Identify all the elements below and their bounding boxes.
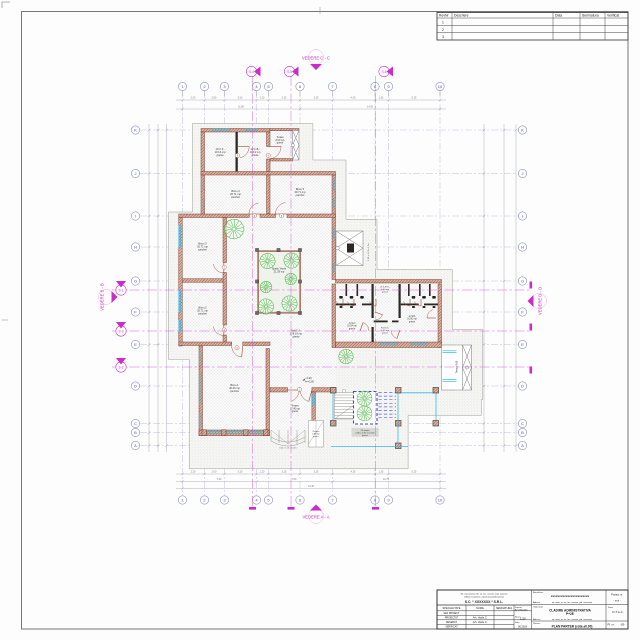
svg-text:SPECIALITATE: SPECIALITATE	[443, 606, 461, 610]
svg-text:Pl. nr.: Pl. nr.	[608, 623, 615, 627]
svg-text:G: G	[134, 278, 137, 283]
svg-text:1:50: 1:50	[520, 616, 526, 620]
svg-text:B: B	[521, 430, 524, 435]
svg-text:h=+2.80: h=+2.80	[305, 380, 314, 383]
svg-text:-G.S.F-: -G.S.F-	[348, 323, 356, 325]
svg-text:24.30: 24.30	[308, 485, 315, 488]
svg-text:parchet: parchet	[198, 312, 207, 316]
svg-text:parchet: parchet	[230, 389, 239, 393]
svg-text:K: K	[134, 127, 137, 132]
svg-text:Verificat: Verificat	[607, 14, 619, 18]
svg-text:3.15: 3.15	[282, 97, 287, 100]
svg-text:5.15: 5.15	[412, 471, 417, 474]
svg-text:Adresa:: Adresa:	[533, 601, 541, 604]
svg-text:16.90 mp: 16.90 mp	[407, 319, 417, 321]
svg-text:PLAN PARTER (cota ±0.00): PLAN PARTER (cota ±0.00)	[552, 624, 593, 628]
svg-text:5.15: 5.15	[412, 97, 417, 100]
svg-text:DESENAT: DESENAT	[446, 621, 458, 624]
svg-text:7.60: 7.60	[292, 478, 297, 481]
svg-text:J: J	[522, 171, 524, 176]
svg-text:gresie: gresie	[382, 332, 389, 335]
svg-text:Descriere: Descriere	[454, 14, 469, 18]
svg-text:D: D	[134, 383, 137, 388]
svg-text:K: K	[521, 127, 524, 132]
svg-text:parchet: parchet	[198, 248, 207, 252]
svg-text:RevNr: RevNr	[439, 14, 449, 18]
svg-text:A: A	[134, 443, 137, 448]
svg-text:VEDERE D - D: VEDERE D - D	[538, 287, 543, 315]
svg-text:3: 3	[442, 35, 444, 39]
svg-text:gresie: gresie	[292, 335, 300, 339]
svg-text:gresie: gresie	[313, 435, 320, 438]
svg-text:E: E	[521, 342, 524, 347]
svg-text:Obiectivul:: Obiectivul:	[533, 606, 544, 609]
svg-text:21.28 mp: 21.28 mp	[274, 270, 285, 273]
svg-text:D.T.A.C.: D.T.A.C.	[612, 610, 623, 614]
svg-text:I: I	[135, 213, 136, 218]
svg-text:10.04 mp: 10.04 mp	[347, 326, 357, 328]
svg-text:gresie: gresie	[409, 320, 416, 323]
svg-text:S.C. * XXXXXXX * S.R.L.: S.C. * XXXXXXX * S.R.L.	[465, 600, 503, 604]
svg-text:NUME: NUME	[476, 606, 484, 610]
svg-text:7.40: 7.40	[217, 478, 222, 481]
svg-text:B: B	[134, 430, 137, 435]
svg-text:VEDERE C - C: VEDERE C - C	[302, 56, 330, 61]
svg-text:Arh. Vasile C.: Arh. Vasile C.	[473, 617, 488, 620]
svg-text:gresie: gresie	[382, 291, 389, 294]
svg-text:A2 (594x420): A2 (594x420)	[515, 608, 528, 611]
svg-text:S-2: S-2	[119, 365, 124, 369]
svg-text:1.20: 1.20	[260, 97, 265, 100]
svg-text:2.20: 2.20	[191, 471, 196, 474]
svg-text:Data: Data	[555, 14, 562, 18]
svg-text:10: 10	[438, 497, 443, 502]
svg-text:gresie: gresie	[216, 153, 224, 157]
svg-text:20 trepte: 20 trepte	[361, 429, 370, 432]
svg-text:gresie: gresie	[277, 142, 284, 145]
svg-text:S-6: S-6	[382, 70, 387, 74]
svg-text:H: H	[521, 244, 524, 249]
svg-text:parchet: parchet	[231, 195, 240, 199]
svg-text:Semnatura: Semnatura	[582, 14, 599, 18]
svg-text:C: C	[521, 421, 524, 426]
svg-text:I: I	[522, 213, 523, 218]
svg-text:06.2019: 06.2019	[518, 626, 528, 629]
svg-text:-03-: -03-	[620, 623, 625, 627]
svg-text:Str. xxxxxxxxxx, Nr. xx, loc.: Str. xxxxxxxxxx, Nr. xx, loc. xxxxxx, Ju…	[460, 593, 508, 596]
svg-text:1: 1	[442, 21, 444, 25]
svg-text:gresie: gresie	[349, 327, 356, 330]
svg-text:tel/fax xxxxxxxxx, email xxxxx: tel/fax xxxxxxxxx, email xxxxxx@xxxxxxx	[464, 596, 505, 599]
svg-text:J: J	[135, 171, 137, 176]
svg-text:3.20: 3.20	[238, 471, 243, 474]
svg-text:3.20: 3.20	[238, 97, 243, 100]
svg-text:2: 2	[442, 28, 444, 32]
svg-text:Plansa:: Plansa:	[533, 623, 541, 625]
svg-text:D: D	[521, 383, 524, 388]
svg-text:H: H	[134, 244, 137, 249]
svg-text:2.00: 2.00	[212, 471, 217, 474]
svg-text:4.25: 4.25	[351, 471, 356, 474]
svg-text:3.25: 3.25	[314, 471, 319, 474]
svg-text:14.00: 14.00	[367, 106, 374, 109]
svg-text:Adresa:: Adresa:	[533, 618, 541, 621]
svg-text:1.35: 1.35	[379, 471, 384, 474]
svg-text:S-3: S-3	[119, 329, 124, 333]
svg-text:SEMNATURA: SEMNATURA	[496, 606, 512, 610]
svg-text:parchet: parchet	[296, 193, 305, 197]
svg-text:PROIECTAT: PROIECTAT	[445, 617, 459, 620]
svg-text:Arh. Vasile C.: Arh. Vasile C.	[473, 621, 488, 624]
svg-text:-G.S.B-: -G.S.B-	[408, 316, 416, 318]
svg-text:10.75: 10.75	[383, 478, 390, 481]
svg-text:gresie: gresie	[292, 410, 299, 413]
svg-text:Faza: Faza	[608, 607, 614, 609]
svg-text:10: 10	[438, 84, 443, 89]
svg-text:VEDERE A - A: VEDERE A - A	[303, 515, 330, 520]
svg-text:S-5: S-5	[287, 70, 292, 74]
svg-text:C: C	[134, 421, 137, 426]
svg-text:3.15: 3.15	[282, 471, 287, 474]
svg-text:VEDERE B - B: VEDERE B - B	[100, 283, 105, 311]
svg-text:Beneficiar:: Beneficiar:	[533, 591, 544, 594]
svg-text:S-1: S-1	[119, 288, 124, 292]
svg-text:VERIFICAT: VERIFICAT	[445, 626, 458, 629]
svg-text:SEF PROIECT: SEF PROIECT	[444, 612, 460, 615]
svg-text:1.20: 1.20	[260, 471, 265, 474]
svg-text:E: E	[134, 342, 137, 347]
svg-text:P+2E: P+2E	[566, 612, 574, 616]
svg-text:2.00: 2.00	[212, 97, 217, 100]
svg-text:Proiect nr.: Proiect nr.	[611, 593, 623, 597]
svg-text:3.25: 3.25	[314, 97, 319, 100]
svg-text:S-4: S-4	[249, 70, 254, 74]
svg-text:gresie: gresie	[362, 434, 369, 437]
svg-text:2.20: 2.20	[191, 97, 196, 100]
svg-text:11.80: 11.80	[238, 106, 244, 109]
svg-text:3.00 x 1.15 x 0.15m: 3.00 x 1.15 x 0.15m	[279, 448, 297, 450]
svg-text:xxxxxxxxxxxxxxxxxxxxxxx: xxxxxxxxxxxxxxxxxxxxxxx	[551, 594, 590, 598]
svg-text:- xxx -: - xxx -	[613, 599, 621, 603]
svg-text:G: G	[521, 278, 524, 283]
svg-text:- 0.00: - 0.00	[305, 376, 312, 380]
svg-text:A: A	[521, 443, 524, 448]
svg-text:1.50 x 1.21 x 1.5m: 1.50 x 1.21 x 1.5m	[368, 243, 370, 261]
svg-text:str. xxxx, nr. xx, loc. xxxxxx: str. xxxx, nr. xx, loc. xxxxxx, jud. xxx…	[552, 601, 593, 604]
svg-text:Terasa 9.60: Terasa 9.60	[456, 360, 459, 373]
svg-text:4.25: 4.25	[351, 97, 356, 100]
svg-text:1.35: 1.35	[379, 97, 384, 100]
svg-text:str. xxxx, nr. xx, loc. xxxxxx: str. xxxx, nr. xx, loc. xxxxxx, jud. xxx…	[552, 618, 593, 621]
